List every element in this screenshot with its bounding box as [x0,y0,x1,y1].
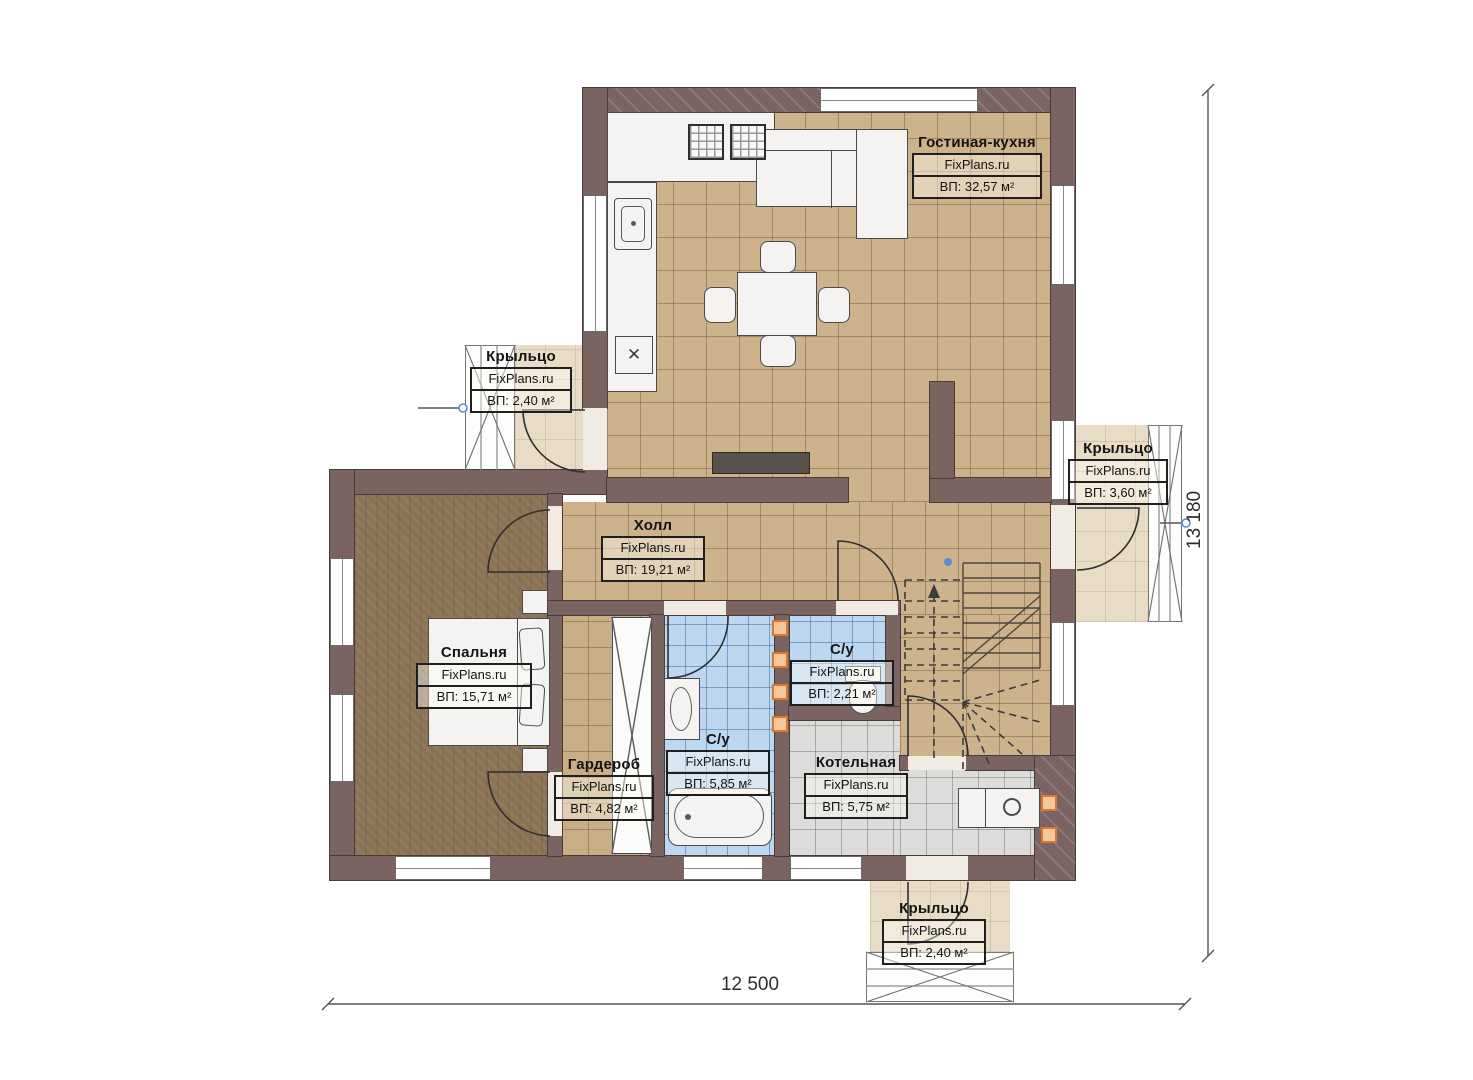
room-area: ВП: 5,75 м² [804,795,908,819]
nightstand-1 [522,590,548,614]
room-label-wardrobe: Гардероб FixPlans.ru ВП: 4,82 м² [554,756,654,821]
chair-right [818,287,850,323]
radiator-marker-3 [772,684,788,700]
window-bedroom-bottom [395,856,491,880]
sink-icon [614,198,652,250]
window-bedroom-left-2 [330,694,354,782]
room-name: Котельная [804,754,908,771]
watermark: FixPlans.ru [790,660,894,684]
doorway-porch-right [1051,505,1075,569]
room-label-bathroom: С/у FixPlans.ru ВП: 5,85 м² [666,731,770,796]
room-label-boiler: Котельная FixPlans.ru ВП: 5,75 м² [804,754,908,819]
radiator-marker-1 [772,620,788,636]
room-name: Крыльцо [1068,440,1168,457]
watermark: FixPlans.ru [470,367,572,391]
cross-symbol: ✕ [627,345,641,365]
doorway-bathroom [664,601,726,615]
watermark: FixPlans.ru [804,773,908,797]
dimension-width-label: 12 500 [690,974,810,996]
window-bedroom-left-1 [330,558,354,646]
radiator-marker-5 [1041,795,1057,811]
doorway-porch-left [583,408,607,470]
oven-icon [730,124,766,160]
room-label-bedroom: Спальня FixPlans.ru ВП: 15,71 м² [416,644,532,709]
wall-top-lower [330,470,607,494]
doorway-bedroom [548,506,562,570]
floor-plan-canvas: ✕ [0,0,1473,1080]
room-name: Крыльцо [470,348,572,365]
wall-kitchen-hall-b [930,478,1051,502]
room-area: ВП: 4,82 м² [554,797,654,821]
tv-console [712,452,810,474]
room-area: ВП: 2,40 м² [470,389,572,413]
window-kitchen-right [1051,185,1075,285]
radiator-marker-2 [772,652,788,668]
room-label-living-kitchen: Гостиная-кухня FixPlans.ru ВП: 32,57 м² [912,134,1042,199]
room-area: ВП: 15,71 м² [416,685,532,709]
room-name: Спальня [416,644,532,661]
wall-stair-boiler-b [966,756,1035,770]
dining-table [737,272,817,336]
room-area: ВП: 19,21 м² [601,558,705,582]
watermark: FixPlans.ru [882,919,986,943]
room-area: ВП: 3,60 м² [1068,481,1168,505]
doorway-boiler [908,756,966,770]
window-stair-right [1051,622,1075,706]
room-label-porch-bottom: Крыльцо FixPlans.ru ВП: 2,40 м² [882,900,986,965]
sofa-corner [856,129,908,239]
stove-icon [688,124,724,160]
window-kitchen-left [583,195,607,332]
dishwasher-icon: ✕ [615,336,653,374]
room-label-porch-right: Крыльцо FixPlans.ru ВП: 3,60 м² [1068,440,1168,505]
doorway-porch-bottom [906,856,968,880]
wall-kitchen-hall-a [607,478,848,502]
nightstand-2 [522,748,548,772]
room-area: ВП: 2,21 м² [790,682,894,706]
room-area: ВП: 32,57 м² [912,175,1042,199]
wall-kitchen-stub [930,382,954,478]
radiator-marker-4 [772,716,788,732]
window-bath-bottom [683,856,763,880]
bathtub [668,788,772,846]
room-name: Крыльцо [882,900,986,917]
room-label-porch-left: Крыльцо FixPlans.ru ВП: 2,40 м² [470,348,572,413]
wall-wc-boiler [789,706,900,720]
room-name: С/у [666,731,770,748]
room-name: Гостиная-кухня [912,134,1042,151]
watermark: FixPlans.ru [416,663,532,687]
wall-corner-block [1035,756,1075,880]
watermark: FixPlans.ru [912,153,1042,177]
room-area: ВП: 2,40 м² [882,941,986,965]
chair-top [760,241,796,273]
watermark: FixPlans.ru [601,536,705,560]
room-label-wc: С/у FixPlans.ru ВП: 2,21 м² [790,641,894,706]
window-boiler-bottom [790,856,862,880]
window-kitchen-top [820,88,978,112]
floor-stair-hall [900,615,1051,770]
watermark: FixPlans.ru [554,775,654,799]
room-name: Холл [601,517,705,534]
boiler-unit [958,788,1040,828]
doorway-wc [836,601,898,615]
radiator-marker-6 [1041,827,1057,843]
room-name: Гардероб [554,756,654,773]
watermark: FixPlans.ru [1068,459,1168,483]
wall-left-lower [330,470,354,880]
room-area: ВП: 5,85 м² [666,772,770,796]
chair-left [704,287,736,323]
room-label-hall: Холл FixPlans.ru ВП: 19,21 м² [601,517,705,582]
room-name: С/у [790,641,894,658]
chair-bottom [760,335,796,367]
watermark: FixPlans.ru [666,750,770,774]
dimension-height-label: 13 180 [1184,455,1206,585]
